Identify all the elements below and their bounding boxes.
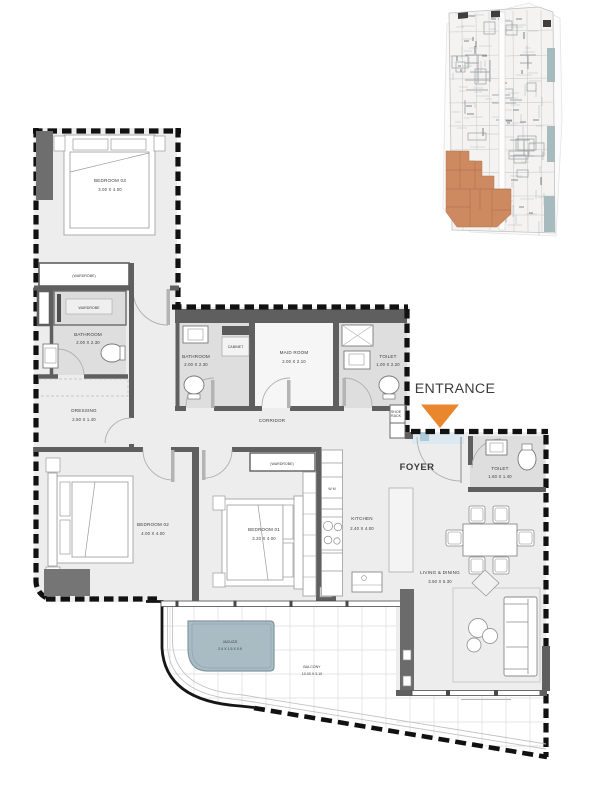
svg-text:CABINET: CABINET xyxy=(228,345,244,349)
svg-text:MAID ROOM: MAID ROOM xyxy=(280,350,309,355)
svg-text:BEDROOM 01: BEDROOM 01 xyxy=(248,527,280,532)
svg-text:1.60 X 1.40: 1.60 X 1.40 xyxy=(488,474,512,479)
svg-text:1.00 X 2.20: 1.00 X 2.20 xyxy=(376,362,400,367)
svg-text:BATHROOM: BATHROOM xyxy=(74,332,102,337)
svg-text:TOILET: TOILET xyxy=(491,466,508,471)
svg-text:4.00 X 4.00: 4.00 X 4.00 xyxy=(141,531,165,536)
svg-text:2.40 X 4.00: 2.40 X 4.00 xyxy=(350,526,374,531)
svg-text:CORRIDOR: CORRIDOR xyxy=(259,418,286,423)
svg-text:BEDROOM 02: BEDROOM 02 xyxy=(137,522,169,527)
svg-text:KITCHEN: KITCHEN xyxy=(351,516,373,521)
svg-text:10.03 X 3.10: 10.03 X 3.10 xyxy=(302,672,322,676)
svg-text:JACUZZI: JACUZZI xyxy=(223,640,238,644)
svg-text:3.20 X 4.00: 3.20 X 4.00 xyxy=(252,536,276,541)
svg-text:RACK: RACK xyxy=(391,414,402,418)
svg-text:(WARDROBE): (WARDROBE) xyxy=(270,462,293,466)
svg-text:2.00 X 2.10: 2.00 X 2.10 xyxy=(282,359,306,364)
svg-text:DRESSING: DRESSING xyxy=(71,408,97,413)
svg-text:LIVING & DINING: LIVING & DINING xyxy=(420,570,460,575)
svg-text:WARDROBE: WARDROBE xyxy=(78,306,100,310)
svg-text:3.50 X 5.30: 3.50 X 5.30 xyxy=(428,579,452,584)
svg-text:BALCONY: BALCONY xyxy=(303,665,321,669)
svg-text:FOYER: FOYER xyxy=(400,462,435,473)
svg-text:TOILET: TOILET xyxy=(379,354,396,359)
svg-text:ENTRANCE: ENTRANCE xyxy=(415,381,495,397)
svg-text:2.50 X 1.40: 2.50 X 1.40 xyxy=(72,417,96,422)
svg-text:2.4 X 1.5 X 0.9: 2.4 X 1.5 X 0.9 xyxy=(218,647,242,651)
svg-text:BEDROOM 03: BEDROOM 03 xyxy=(94,178,126,183)
svg-text:3.00 X 4.00: 3.00 X 4.00 xyxy=(98,187,122,192)
svg-text:BATHROOM: BATHROOM xyxy=(182,354,210,359)
svg-text:(WARDROBE): (WARDROBE) xyxy=(72,274,95,278)
svg-text:2.00 X 2.30: 2.00 X 2.30 xyxy=(76,340,100,345)
svg-text:W M: W M xyxy=(328,487,335,491)
svg-text:2.00 X 2.30: 2.00 X 2.30 xyxy=(184,362,208,367)
